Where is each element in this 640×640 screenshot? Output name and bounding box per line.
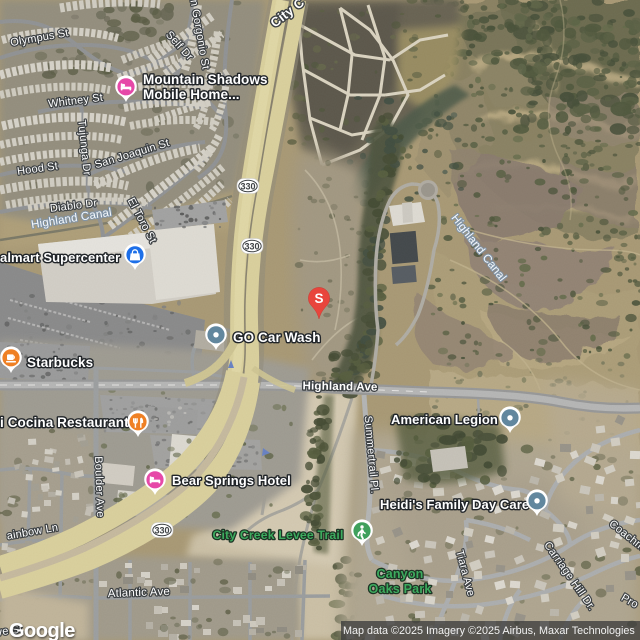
svg-text:City Creek Levee Trail: City Creek Levee Trail xyxy=(212,528,343,542)
svg-text:Highland Ave: Highland Ave xyxy=(302,380,377,393)
svg-text:i Cocina Restaurant: i Cocina Restaurant xyxy=(0,415,129,430)
svg-text:330: 330 xyxy=(240,181,255,191)
svg-text:S: S xyxy=(314,291,323,306)
svg-text:Canyon: Canyon xyxy=(376,567,423,581)
svg-text:Map data ©2025 Imagery ©2025 A: Map data ©2025 Imagery ©2025 Airbus, Max… xyxy=(343,625,635,637)
svg-text:Starbucks: Starbucks xyxy=(27,355,93,370)
svg-text:Google: Google xyxy=(9,620,75,640)
svg-text:GO Car Wash: GO Car Wash xyxy=(233,330,321,345)
svg-text:330: 330 xyxy=(154,525,169,535)
svg-text:Oaks Park: Oaks Park xyxy=(369,582,432,596)
svg-text:Bear Springs Hotel: Bear Springs Hotel xyxy=(172,473,291,488)
svg-text:Boulder Ave: Boulder Ave xyxy=(92,456,106,518)
svg-text:Mobile Home...: Mobile Home... xyxy=(143,87,240,102)
svg-text:Mountain Shadows: Mountain Shadows xyxy=(143,72,268,87)
svg-text:Atlantic Ave: Atlantic Ave xyxy=(108,586,171,600)
svg-text:330: 330 xyxy=(244,241,259,251)
svg-text:almart Supercenter: almart Supercenter xyxy=(0,250,120,265)
svg-text:American Legion: American Legion xyxy=(391,412,498,427)
svg-text:Heidi's Family Day Care: Heidi's Family Day Care xyxy=(380,497,529,512)
